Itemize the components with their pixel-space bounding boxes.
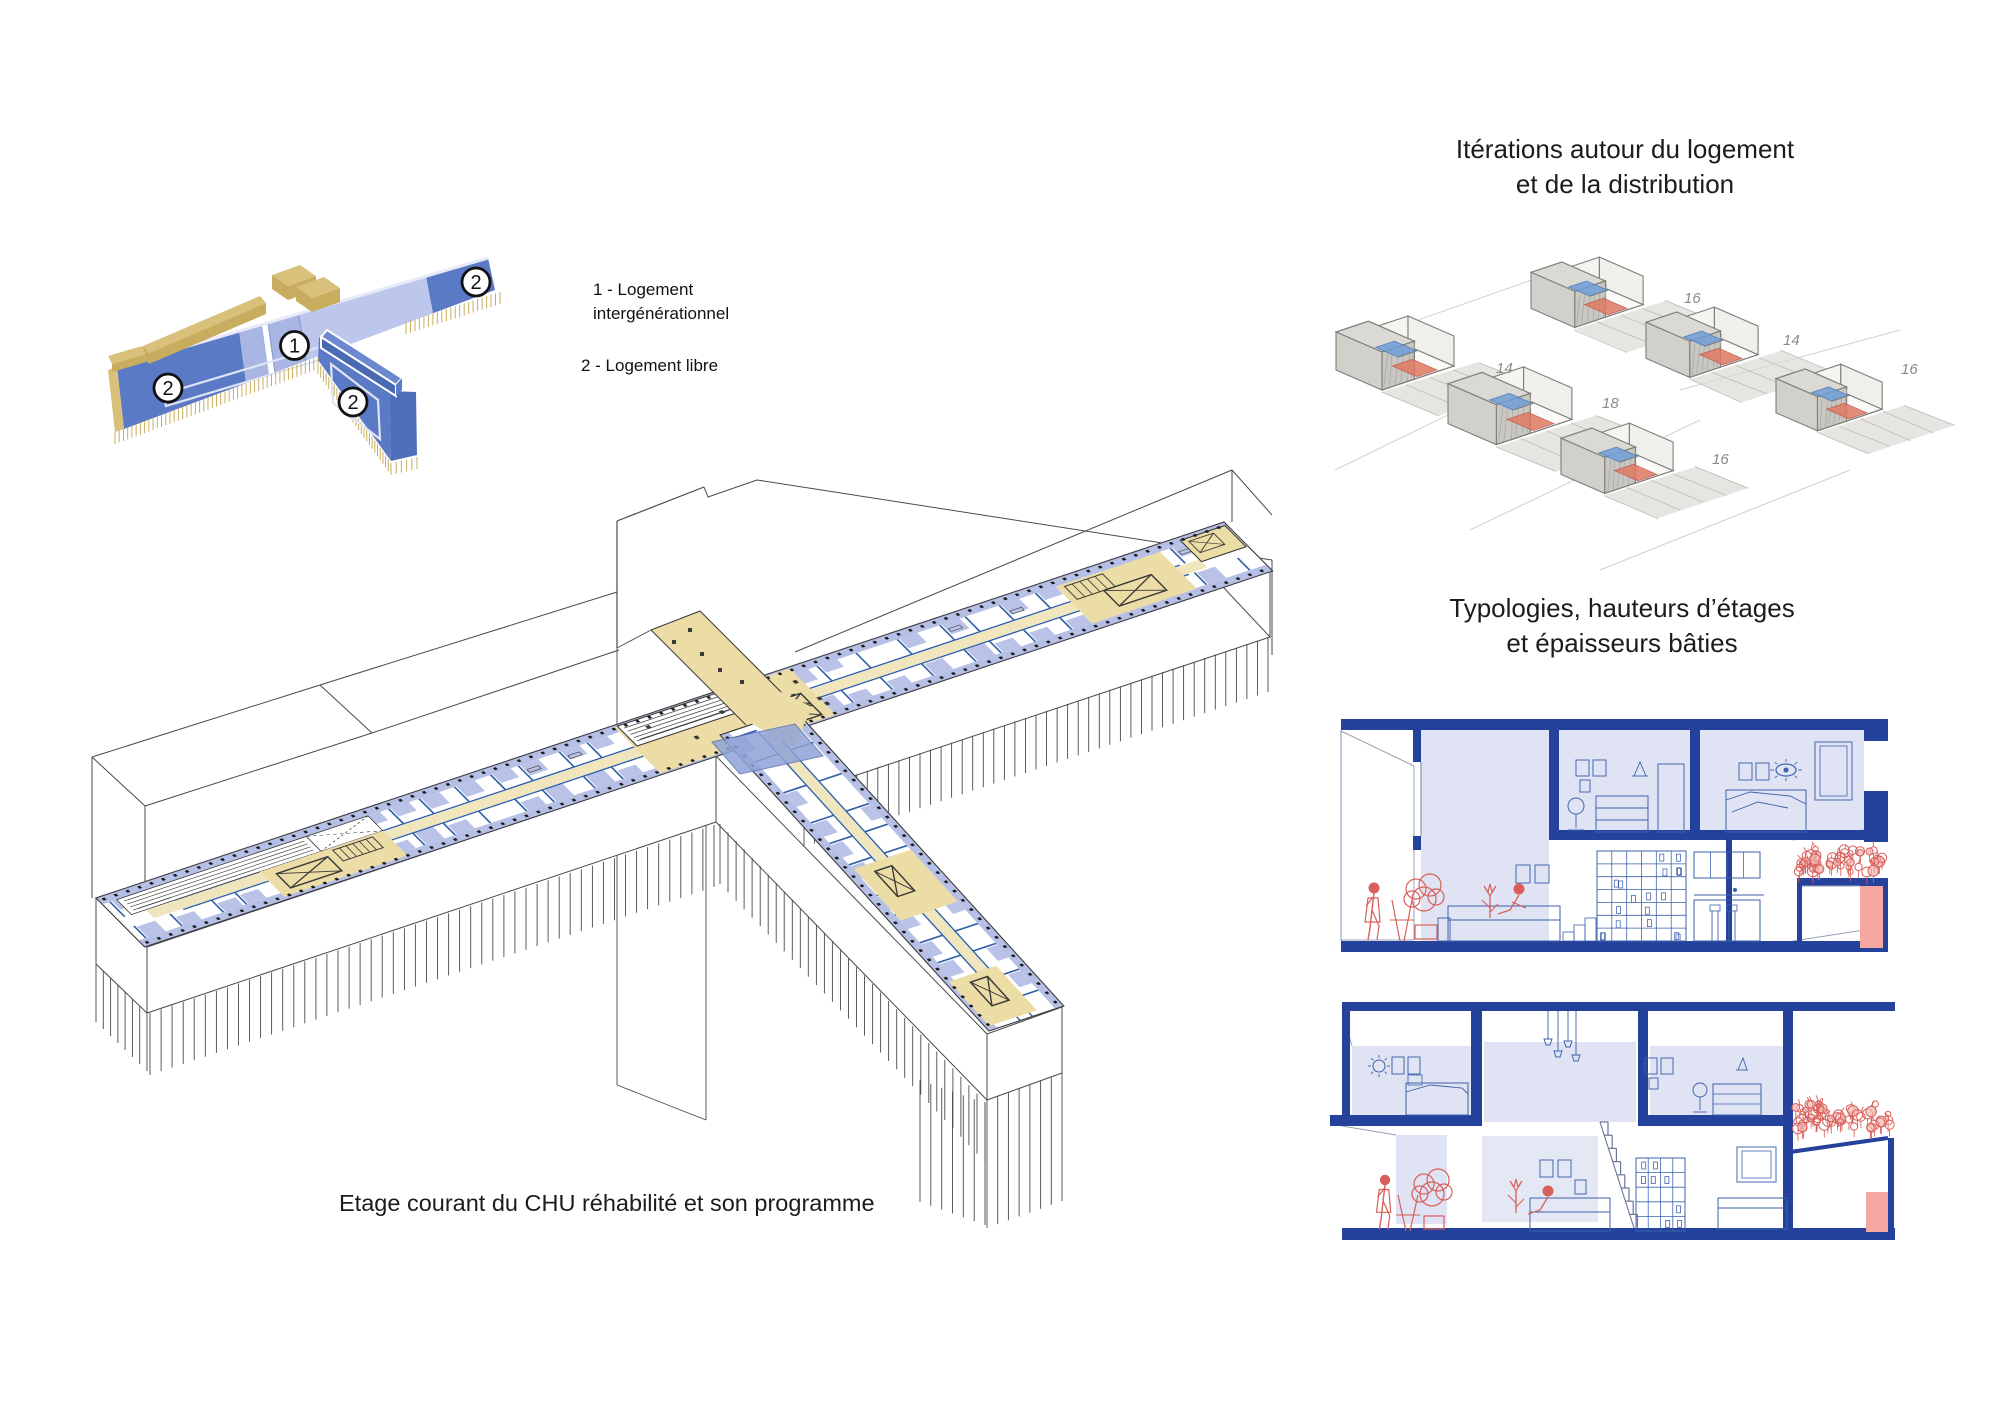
svg-text:et épaisseurs bâties: et épaisseurs bâties [1506,628,1737,658]
svg-text:14: 14 [1783,332,1800,349]
svg-text:Typologies, hauteurs d’étages: Typologies, hauteurs d’étages [1449,593,1794,623]
svg-text:16: 16 [1901,361,1918,378]
svg-text:16: 16 [1712,451,1729,468]
svg-text:1 - Logement: 1 - Logement [593,280,693,299]
svg-text:2: 2 [162,378,173,400]
svg-text:2: 2 [470,272,481,294]
svg-text:intergénérationnel: intergénérationnel [593,304,729,323]
svg-text:1: 1 [289,336,300,358]
svg-text:Itérations autour du logement: Itérations autour du logement [1456,134,1795,164]
svg-text:Etage courant du CHU réhabilit: Etage courant du CHU réhabilité et son p… [339,1190,875,1216]
svg-text:2: 2 [347,392,358,414]
svg-text:et de la distribution: et de la distribution [1516,169,1734,199]
svg-text:16: 16 [1684,290,1701,307]
svg-text:2 - Logement libre: 2 - Logement libre [581,356,718,375]
svg-text:18: 18 [1602,395,1619,412]
svg-text:14: 14 [1496,360,1513,377]
